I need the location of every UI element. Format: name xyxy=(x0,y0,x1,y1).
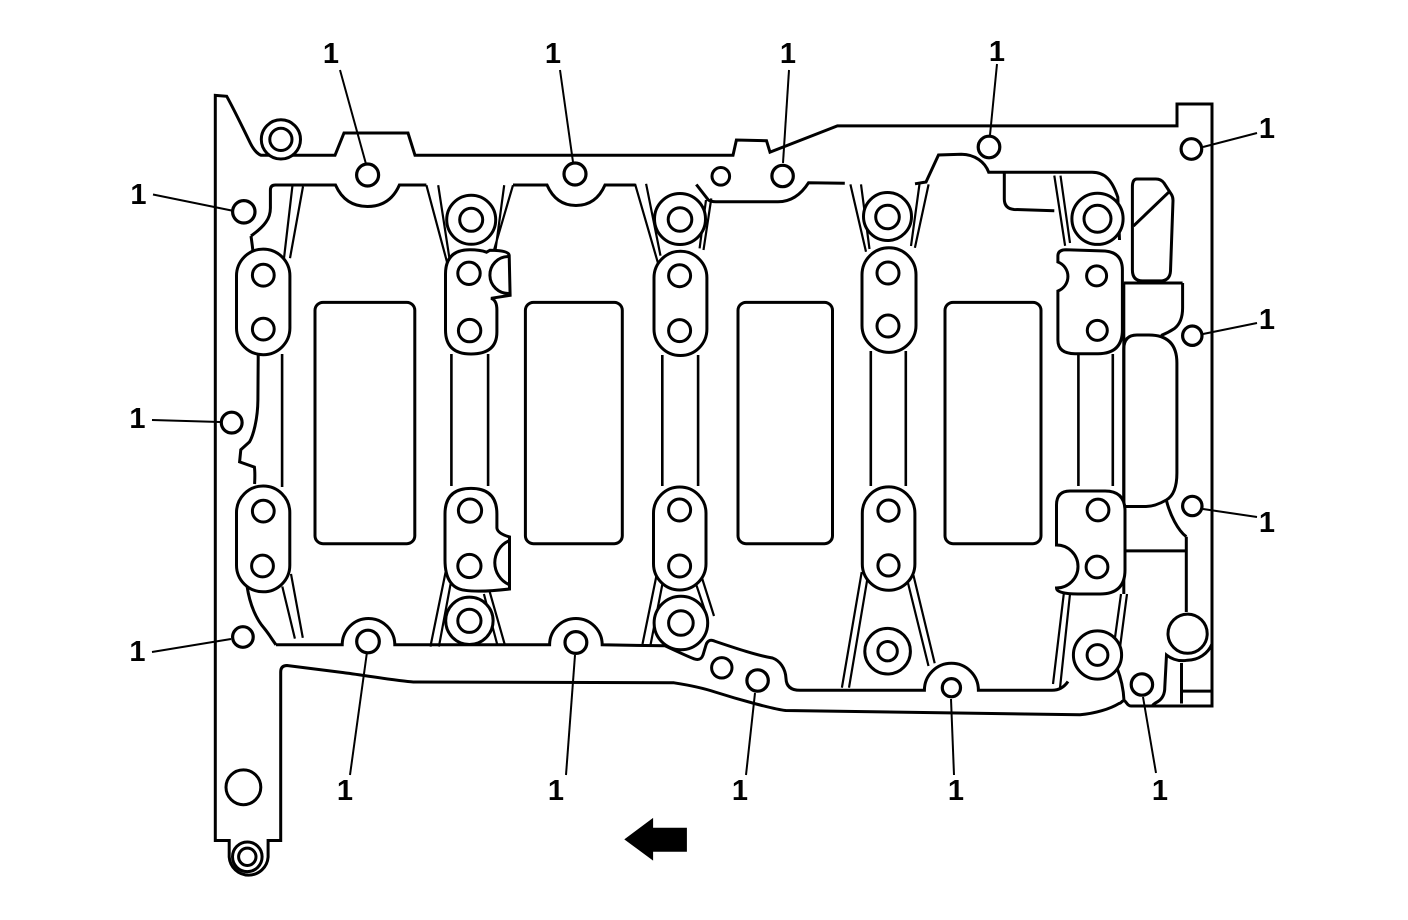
svg-text:1: 1 xyxy=(1259,507,1275,539)
svg-text:1: 1 xyxy=(545,38,561,70)
svg-text:1: 1 xyxy=(989,36,1005,68)
svg-text:1: 1 xyxy=(732,775,748,807)
svg-text:1: 1 xyxy=(129,636,145,668)
svg-text:1: 1 xyxy=(337,775,353,807)
svg-text:1: 1 xyxy=(323,38,339,70)
svg-text:1: 1 xyxy=(1259,304,1275,336)
svg-text:1: 1 xyxy=(129,403,145,435)
svg-text:1: 1 xyxy=(548,775,564,807)
svg-text:1: 1 xyxy=(130,179,146,211)
svg-text:1: 1 xyxy=(1152,775,1168,807)
svg-text:1: 1 xyxy=(780,38,796,70)
svg-text:1: 1 xyxy=(948,775,964,807)
svg-text:1: 1 xyxy=(1259,113,1275,145)
